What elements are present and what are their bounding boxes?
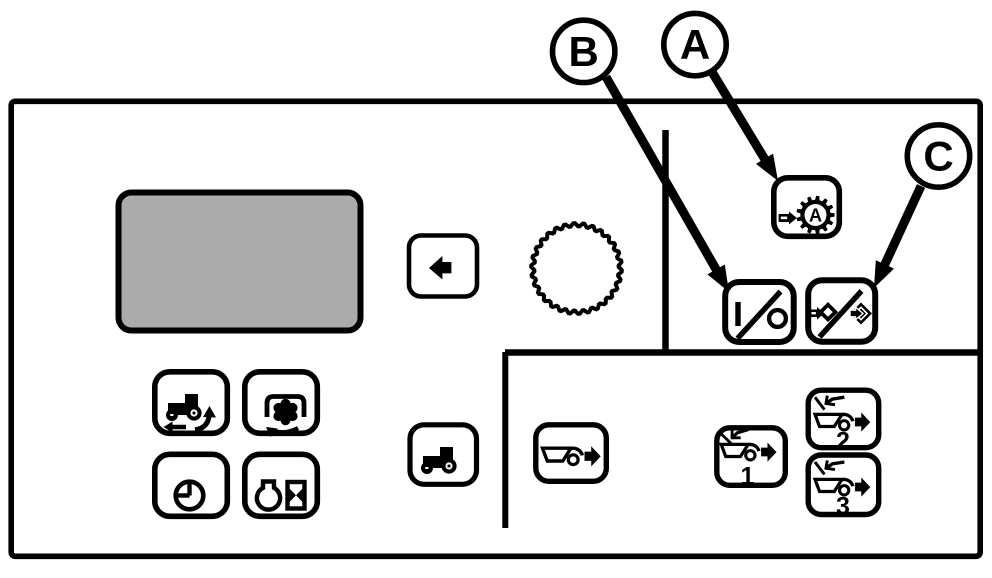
- svg-text:A: A: [680, 21, 710, 68]
- svg-text:A: A: [809, 206, 822, 226]
- svg-text:1: 1: [741, 463, 755, 491]
- svg-text:C: C: [923, 133, 953, 180]
- svg-text:2: 2: [836, 428, 850, 456]
- svg-text:3: 3: [836, 493, 850, 521]
- svg-text:B: B: [569, 28, 599, 75]
